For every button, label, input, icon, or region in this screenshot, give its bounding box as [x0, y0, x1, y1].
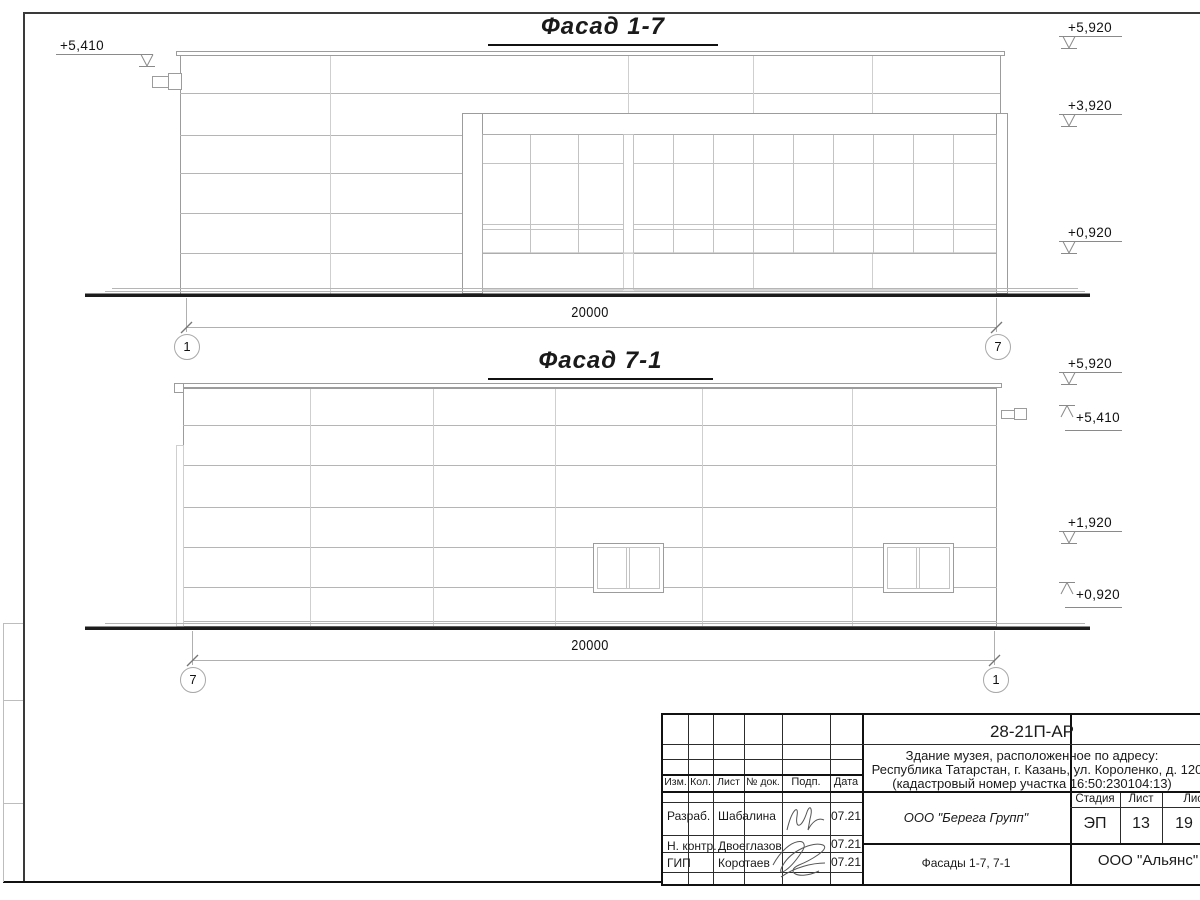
side-stamp-divider [3, 803, 23, 804]
tb-line [862, 843, 1200, 845]
axis-bubble-1: 1 [174, 334, 200, 360]
level-mark: +1,920 [1058, 515, 1162, 548]
col-header-izm: Изм. [663, 776, 688, 788]
date-gip: 07.21 [830, 855, 862, 869]
col-header-list: Лист [713, 776, 744, 788]
ground-line [85, 627, 1090, 631]
date-nkontr: 07.21 [830, 837, 862, 851]
stage-value: ЭП [1070, 815, 1120, 833]
client-org: ООО "Альянс" [1070, 852, 1200, 869]
ground-line [85, 294, 1090, 298]
level-mark: +5,410 [1058, 403, 1162, 433]
role-nkontr: Н. контр. [667, 839, 719, 853]
design-org: ООО "Берега Групп" [862, 810, 1070, 825]
base-band [483, 254, 997, 291]
level-mark: +0,920 [1058, 225, 1162, 258]
window [884, 544, 954, 593]
level-arrow-icon [56, 53, 160, 71]
facade-7-1-drawing [80, 375, 1100, 670]
facade-1-7-drawing [80, 40, 1100, 340]
level-mark: +3,920 [1058, 98, 1162, 131]
listov-value: 19 [1162, 815, 1200, 833]
level-mark: +0,920 [1058, 580, 1162, 610]
axis-bubble-7: 7 [180, 667, 206, 693]
level-mark: +5,410 [56, 38, 160, 71]
list-value: 13 [1120, 815, 1162, 833]
level-arrow-icon [1058, 530, 1128, 548]
axis-bubble-1: 1 [983, 667, 1009, 693]
level-mark: +5,920 [1058, 20, 1162, 53]
building-outline [175, 384, 1002, 627]
level-arrow-icon [1058, 240, 1128, 258]
window [594, 544, 664, 593]
level-arrow-icon [1058, 113, 1128, 131]
level-arrow-icon [1058, 35, 1128, 53]
tb-line [663, 759, 862, 760]
col-header-kol: Кол. [688, 776, 713, 788]
title-block: 28-21П-АР Здание музея, расположенное по… [661, 713, 1200, 886]
level-arrow-icon [1058, 371, 1128, 389]
curtain-wall-pier [624, 135, 634, 254]
signature-nkontr-gip [769, 833, 833, 885]
col-header-dok: № док. [744, 776, 782, 788]
side-stamp-divider [3, 623, 23, 624]
list-label: Лист [1120, 793, 1162, 805]
level-value: +0,920 [1068, 225, 1162, 240]
level-value: +5,920 [1068, 20, 1162, 35]
curtain-wall [483, 135, 997, 254]
sheet-name: Фасады 1-7, 7-1 [862, 856, 1070, 870]
doc-code: 28-21П-АР [862, 722, 1200, 742]
level-value: +0,920 [1076, 587, 1120, 602]
facade-1-7-dimension: 20000 [548, 304, 633, 321]
level-value: +3,920 [1068, 98, 1162, 113]
level-value: +5,920 [1068, 356, 1162, 371]
rooftop-unit [153, 74, 182, 90]
level-value: +1,920 [1068, 515, 1162, 530]
project-address-line2: Республика Татарстан, г. Казань, ул. Кор… [852, 762, 1200, 777]
col-header-podp: Подп. [782, 776, 830, 788]
tb-line [663, 802, 862, 803]
level-value: +5,410 [1076, 410, 1120, 425]
side-stamp-border [3, 623, 4, 882]
side-stamp-divider [3, 700, 23, 701]
project-address-line1: Здание музея, расположенное по адресу: [862, 748, 1200, 763]
facade-7-1-dimension: 20000 [548, 637, 633, 654]
role-gip: ГИП [667, 856, 715, 870]
project-address-line3: (кадастровый номер участка 16:50:230104:… [862, 776, 1200, 791]
date-razrab: 07.21 [830, 809, 862, 823]
col-header-data: Дата [830, 776, 862, 788]
rooftop-unit [1002, 409, 1027, 420]
name-razrab: Шабалина [718, 809, 780, 823]
stage-label: Стадия [1070, 793, 1120, 805]
drawing-sheet: Фасад 1-7 [0, 0, 1200, 900]
level-mark: +5,920 [1058, 356, 1162, 389]
frame-left [23, 12, 25, 882]
level-value: +5,410 [60, 38, 160, 53]
tb-line [1070, 807, 1200, 808]
tb-line [663, 744, 1200, 745]
axis-bubble-7: 7 [985, 334, 1011, 360]
role-razrab: Разраб. [667, 809, 715, 823]
listov-label: Листов [1162, 793, 1200, 805]
